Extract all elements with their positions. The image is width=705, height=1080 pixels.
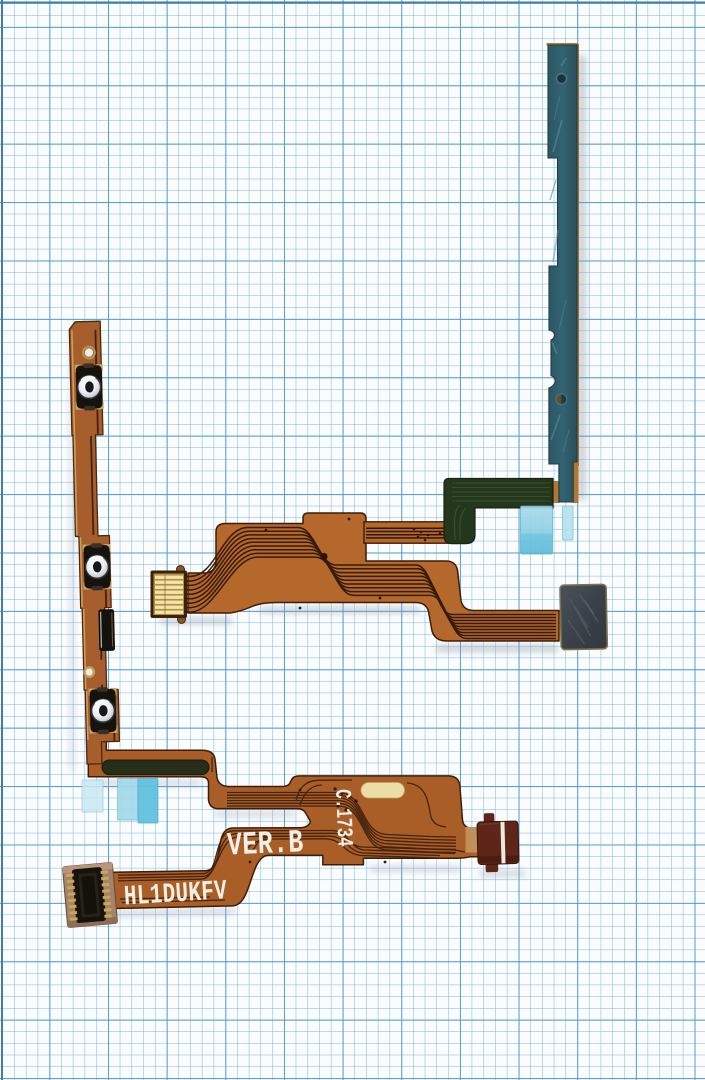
- svg-text:C.1734: C.1734: [329, 789, 357, 848]
- svg-text:HL1DUKFV: HL1DUKFV: [123, 876, 228, 914]
- svg-text:VER.B: VER.B: [226, 824, 304, 864]
